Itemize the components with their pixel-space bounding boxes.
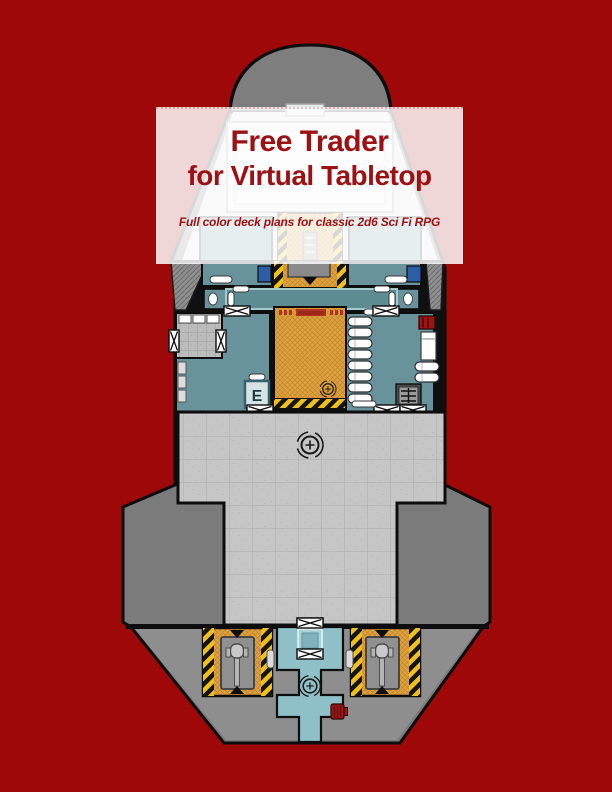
counter [193,315,205,323]
galley [176,313,222,358]
low-berth-pod [348,317,372,326]
starboard-drive-bay [351,628,420,696]
cargo-hatch-target-icon [297,432,323,458]
hatch-door [249,374,265,380]
low-berth-pod [348,328,372,337]
subtitle: Full color deck plans for classic 2d6 Sc… [156,215,463,229]
engineering-section [125,618,489,742]
locker [178,362,186,374]
iris-valve-icon [297,649,323,659]
port-drive-bay [203,628,272,696]
title-line-2: for Virtual Tabletop [156,159,463,193]
low-berth-room [346,309,439,412]
hatch-target-icon [300,676,321,697]
low-berth-pod [348,361,372,370]
bed-icon [421,332,436,360]
cover-page: E [0,0,612,792]
hatch-door [374,286,390,292]
low-berth-pod [348,372,372,381]
low-berth-pod [348,350,372,359]
toilet-icon [209,293,218,305]
counter [179,315,191,323]
counter [207,315,219,323]
iris-valve-icon [297,618,323,628]
cargo-lift [274,307,346,408]
cargo-lift-shaft [274,261,346,288]
locker [178,376,186,388]
stateroom-bed [210,276,232,283]
fresher-unit-icon [396,384,421,407]
bunk-blue [407,266,421,282]
title-line-1: Free Trader [156,124,463,159]
low-berth-pod [415,373,439,382]
low-berth-pod [415,362,439,371]
stateroom-starboard [348,263,421,286]
hatch-door [228,292,234,306]
low-berth-pod [348,339,372,348]
toilet-icon [404,293,413,305]
title-banner: Free Trader for Virtual Tabletop Full co… [156,107,463,264]
crew-deck: E [169,260,445,416]
medical-machine-icon [419,316,435,329]
nose-dome [230,45,391,112]
airlock-hatch [302,633,318,648]
low-berth-pod [348,383,372,392]
hatch-door [233,286,249,292]
stateroom-bed [385,276,407,283]
elevator: E [245,381,269,408]
handle [346,650,353,668]
elevator-label: E [252,388,263,405]
locker [178,390,186,402]
hatch-door [389,292,395,306]
hazard-strip [274,399,346,408]
handle [267,650,274,668]
bunk-blue [258,266,271,282]
stateroom-port [202,263,272,286]
lift-target-icon [320,381,336,397]
